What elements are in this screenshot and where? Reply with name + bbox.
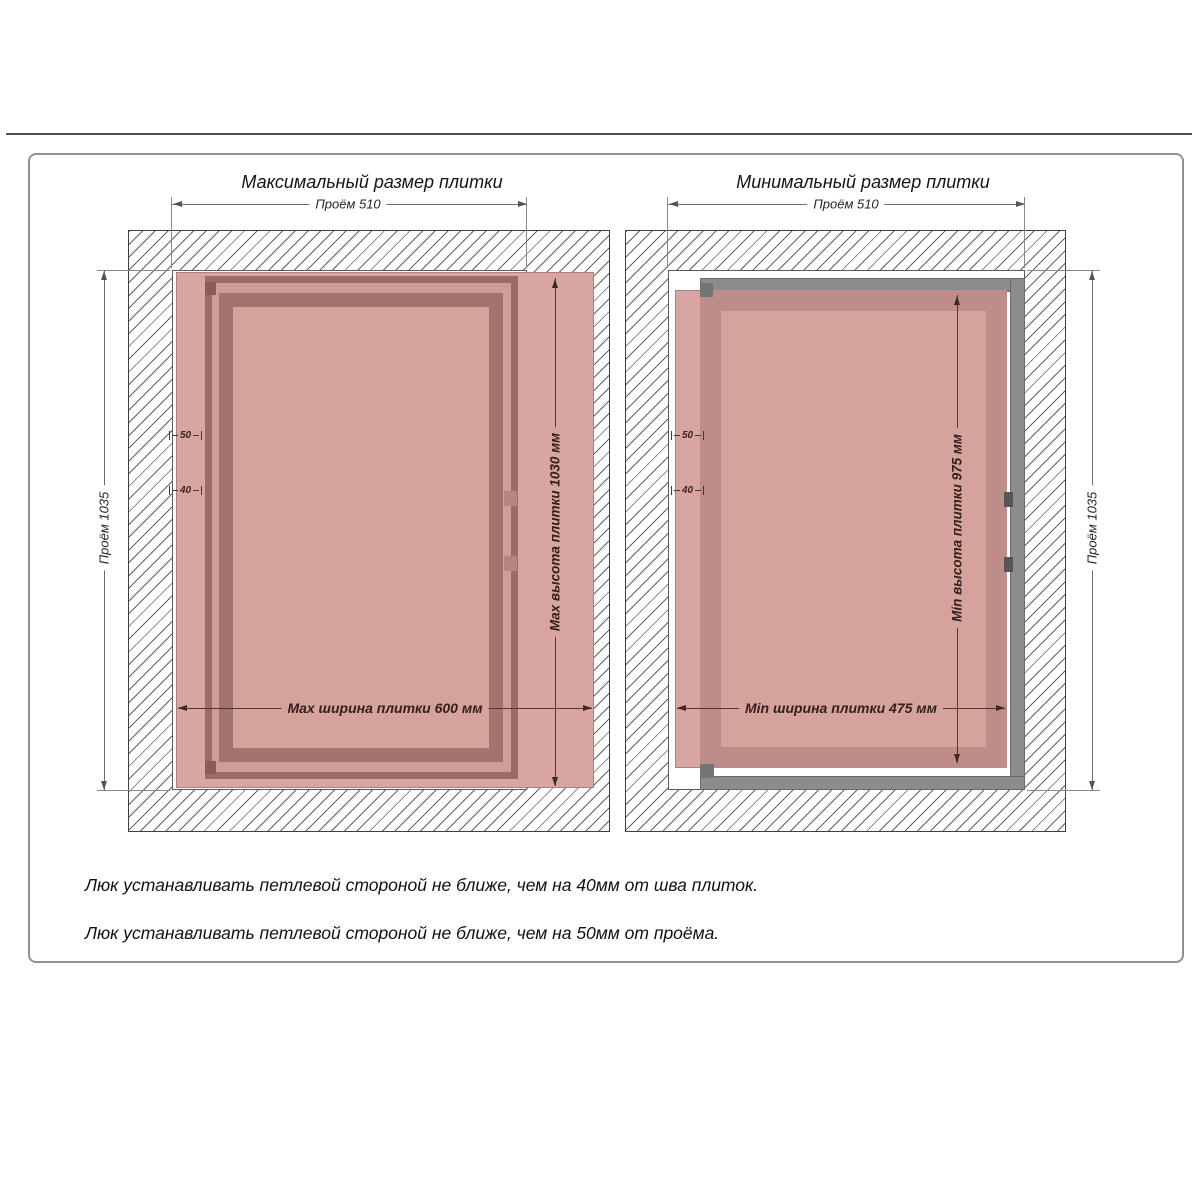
left-diagram-title: Максимальный размер плитки: [122, 172, 622, 193]
arrow-right-icon: [1016, 201, 1025, 207]
right-tile-height-label: Min высота плитки 975 мм: [950, 428, 965, 628]
right-offset-50-dim: 50: [671, 430, 704, 441]
left-ext-line: [526, 197, 527, 268]
arrow-down-icon: [1089, 781, 1095, 790]
right-offset-50-label: 50: [682, 430, 693, 441]
arrow-left-icon: [669, 201, 678, 207]
arrow-up-icon: [1089, 271, 1095, 280]
left-offset-40-dim: 40: [169, 485, 202, 496]
note-seam-offset: Люк устанавливать петлевой стороной не б…: [85, 875, 758, 896]
left-tile-height-label: Max высота плитки 1030 мм: [548, 427, 563, 637]
right-opening-width-label: Проём 510: [807, 197, 884, 212]
left-ext-line: [171, 197, 172, 268]
arrow-up-icon: [552, 279, 558, 288]
right-ext-line: [667, 197, 668, 268]
right-frame-right-bar: [1010, 278, 1025, 790]
arrow-up-icon: [101, 271, 107, 280]
right-offset-40-dim: 40: [671, 485, 704, 496]
right-opening-height-label: Проём 1035: [1085, 486, 1100, 571]
left-hinge-top-icon: [205, 282, 216, 295]
arrow-left-icon: [677, 705, 686, 711]
left-latch-lower-icon: [504, 556, 517, 571]
top-divider-line: [6, 133, 1192, 135]
right-ext-line: [1027, 790, 1100, 791]
arrow-down-icon: [552, 777, 558, 786]
right-hinge-bottom-icon: [700, 764, 714, 778]
arrow-right-icon: [996, 705, 1005, 711]
left-ext-line: [97, 790, 170, 791]
left-hinge-bottom-icon: [205, 761, 216, 774]
right-ext-line: [1024, 197, 1025, 268]
arrow-left-icon: [173, 201, 182, 207]
right-tile-width-label: Min ширина плитки 475 мм: [739, 700, 943, 716]
arrow-down-icon: [954, 754, 960, 763]
left-opening-height-label: Проём 1035: [97, 486, 112, 571]
arrow-down-icon: [101, 781, 107, 790]
left-tile-width-label: Max ширина плитки 600 мм: [281, 700, 488, 716]
arrow-up-icon: [954, 296, 960, 305]
left-hatch-door-panel: [219, 293, 503, 762]
arrow-left-icon: [178, 705, 187, 711]
left-offset-50-label: 50: [180, 430, 191, 441]
right-offset-40-label: 40: [682, 485, 693, 496]
left-offset-50-dim: 50: [169, 430, 202, 441]
right-hinge-top-icon: [700, 283, 713, 297]
left-latch-upper-icon: [504, 491, 517, 506]
right-latch-upper-icon: [1004, 492, 1013, 507]
note-opening-offset: Люк устанавливать петлевой стороной не б…: [85, 923, 719, 944]
arrow-right-icon: [583, 705, 592, 711]
drawing-page: Максимальный размер плитки Проём 510 Про…: [0, 0, 1200, 1200]
right-latch-lower-icon: [1004, 557, 1013, 572]
right-frame-bottom-bar: [700, 776, 1025, 790]
left-opening-width-label: Проём 510: [309, 197, 386, 212]
arrow-right-icon: [518, 201, 527, 207]
left-offset-40-label: 40: [180, 485, 191, 496]
left-ext-line: [97, 270, 170, 271]
right-diagram-title: Минимальный размер плитки: [613, 172, 1113, 193]
